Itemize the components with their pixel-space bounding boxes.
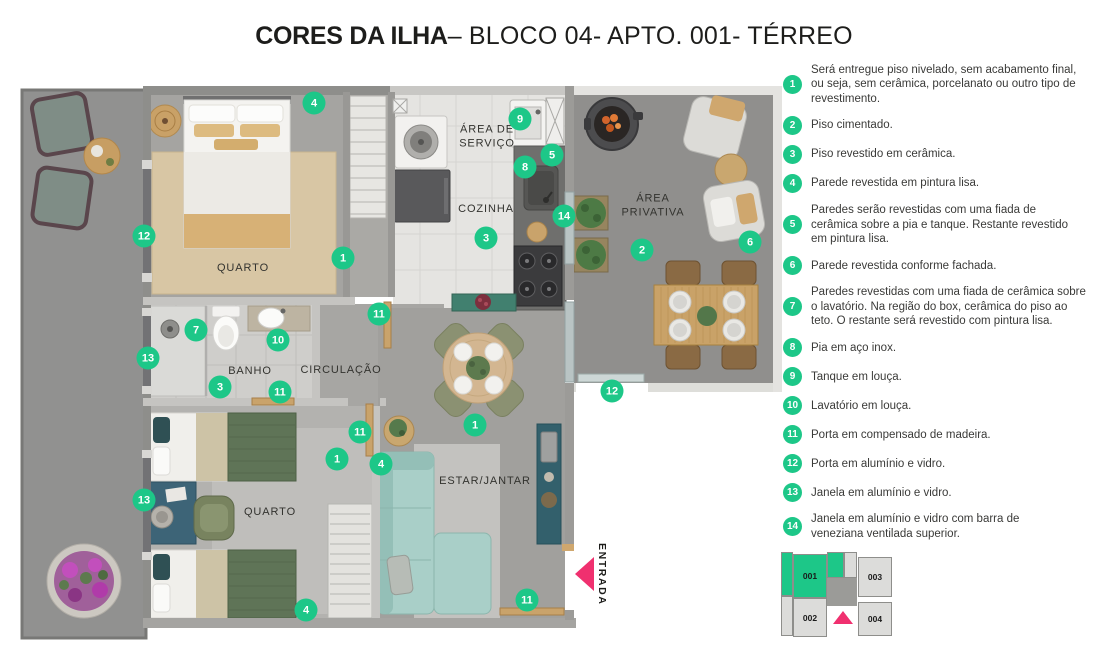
key-plan-unit-002: 002 [793,598,827,637]
legend-item-text: Tanque em louça. [811,370,902,384]
legend-item-text: Porta em alumínio e vidro. [811,457,945,471]
side-table-plant-icon [384,416,414,446]
key-plan-unit-001: 001 [793,554,827,598]
key-plan-strip [781,596,793,636]
legend-number-badge: 11 [783,425,802,444]
privativa-glass-door-icon [578,374,644,382]
vent-window-icon [393,99,407,113]
key-plan-unit-004: 004 [858,602,892,636]
bathroom-vanity-icon [248,306,310,331]
vent-window-icon [546,98,564,144]
patio-armchair-icon [31,92,94,157]
key-plan-north-arrow-icon [833,611,853,624]
patio-sliding-door-icon [143,168,151,274]
legend-item-text: Lavatório em louça. [811,399,911,413]
legend-item-12: 12Porta em alumínio e vidro. [783,454,1101,473]
legend-item-text: Parede revestida em pintura lisa. [811,176,979,190]
washing-machine-icon [395,116,447,168]
legend-item-10: 10Lavatório em louça. [783,396,1101,415]
legend-number-badge: 6 [783,256,802,275]
legend-item-7: 7Paredes revestidas com uma fiada de cer… [783,285,1101,328]
banho-window-icon [143,315,151,387]
legend-number-badge: 5 [783,215,802,234]
round-dining-table-icon [443,333,513,403]
legend-item-text: Pia em aço inox. [811,341,896,355]
legend-number-badge: 3 [783,145,802,164]
legend-item-text: Piso revestido em cerâmica. [811,147,955,161]
legend-item-9: 9Tanque em louça. [783,367,1101,386]
legend-item-11: 11Porta em compensado de madeira. [783,425,1101,444]
banho-door-icon [252,398,294,405]
key-plan-cell [844,552,857,578]
legend-item-text: Piso cimentado. [811,118,893,132]
entry-door-icon [500,608,564,615]
legend-number-badge: 12 [783,454,802,473]
legend-item-6: 6Parede revestida conforme fachada. [783,256,1101,275]
legend-number-badge: 1 [783,75,802,94]
fridge-icon [394,170,450,222]
legend: 1Será entregue piso nivelado, sem acabam… [783,63,1101,551]
tv-cabinet-icon [537,424,561,544]
potted-plant-icon [574,238,608,272]
single-bed-icon [150,413,296,481]
stove-icon [514,246,562,306]
legend-number-badge: 9 [783,367,802,386]
legend-number-badge: 7 [783,297,802,316]
estar-glass-door-icon [565,302,574,382]
legend-item-8: 8Pia em aço inox. [783,338,1101,357]
legend-item-2: 2Piso cimentado. [783,116,1101,135]
bedroom1-door-icon [384,302,391,348]
legend-number-badge: 13 [783,483,802,502]
legend-number-badge: 8 [783,338,802,357]
wardrobe-closet-icon [328,504,372,618]
toilet-icon [212,306,240,350]
legend-item-text: Parede revestida conforme fachada. [811,259,996,273]
legend-number-badge: 2 [783,116,802,135]
legend-item-5: 5Paredes serão revestidas com uma fiada … [783,203,1101,246]
legend-item-13: 13Janela em alumínio e vidro. [783,483,1101,502]
patio-terrace [22,90,146,638]
key-plan-strip [781,552,793,596]
legend-item-text: Será entregue piso nivelado, sem acabame… [811,63,1076,106]
key-plan-core [827,578,857,606]
single-bed-icon [150,550,296,618]
legend-number-badge: 4 [783,174,802,193]
key-plan-unit-001-extension [827,552,844,578]
key-plan: 001 003 002 004 [781,551,898,638]
kitchen-island-icon [452,294,516,311]
wardrobe-closet-icon [350,96,386,218]
bedside-table-icon [149,105,181,137]
key-plan-unit-003: 003 [858,557,892,597]
bedroom2-door-icon [366,404,373,456]
legend-item-text: Janela em alumínio e vidro com barra de … [811,512,1019,541]
legend-item-3: 3Piso revestido em cerâmica. [783,145,1101,164]
legend-item-1: 1Será entregue piso nivelado, sem acabam… [783,63,1101,106]
desk-icon [148,482,196,544]
floor-plan-canvas [0,0,800,664]
patio-side-table-icon [84,138,120,174]
entrance-arrow-icon [575,557,594,591]
legend-item-text: Janela em alumínio e vidro. [811,486,952,500]
bedroom2-window-icon [143,458,151,553]
legend-number-badge: 14 [783,517,802,536]
legend-item-text: Paredes serão revestidas com uma fiada d… [811,203,1068,246]
double-bed-icon [183,96,291,248]
flower-planter-icon [47,544,121,618]
legend-item-text: Paredes revestidas com uma fiada de cerâ… [811,285,1086,328]
desk-chair-icon [194,496,234,540]
legend-item-text: Porta em compensado de madeira. [811,428,991,442]
legend-number-badge: 10 [783,396,802,415]
legend-list: 1Será entregue piso nivelado, sem acabam… [783,63,1101,541]
shower-box-icon [148,306,206,396]
legend-item-4: 4Parede revestida em pintura lisa. [783,174,1101,193]
patio-armchair-icon [31,167,92,230]
legend-item-14: 14Janela em alumínio e vidro com barra d… [783,512,1101,541]
laundry-tank-icon [510,100,546,147]
page: CORES DA ILHA– BLOCO 04- APTO. 001- TÉRR… [0,0,1108,664]
kitchen-window-icon [565,192,574,264]
lounge-armchair-icon [702,179,767,244]
potted-plant-icon [574,196,608,230]
entrance-label: ENTRADA [596,543,608,606]
